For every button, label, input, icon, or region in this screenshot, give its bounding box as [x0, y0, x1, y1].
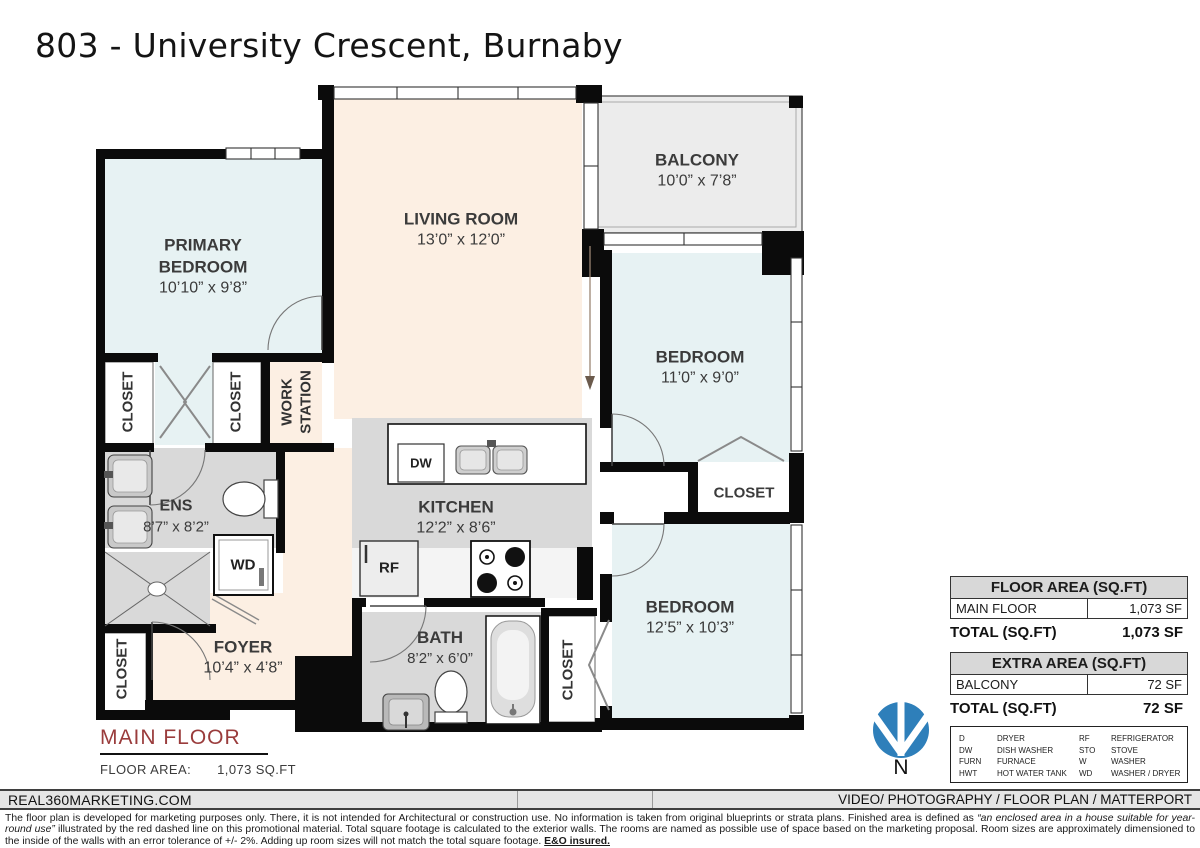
legend-abbr: W — [1079, 757, 1111, 766]
legend-label: DRYER — [997, 734, 1025, 743]
extra-area-row-label: BALCONY — [951, 675, 1087, 694]
main-floor-title: MAIN FLOOR — [100, 726, 300, 750]
table-row: BALCONY 72 SF — [950, 675, 1188, 695]
floor-plan-sheet: 803 - University Crescent, Burnaby — [0, 0, 1200, 848]
extra-area-total-row: TOTAL (SQ.FT) 72 SF — [950, 695, 1188, 721]
refrigerator-label: RF — [379, 560, 399, 577]
floor-area-total-label: TOTAL (SQ.FT) — [950, 624, 1057, 641]
legend-label: STOVE — [1111, 746, 1138, 755]
stove-icon — [471, 541, 530, 597]
legend-abbr: FURN — [959, 757, 997, 766]
kitchen-island — [388, 424, 586, 484]
legend-label: WASHER — [1111, 757, 1146, 766]
floor-area-total-value: 1,073 SF — [1122, 624, 1183, 641]
legend-label: REFRIGERATOR — [1111, 734, 1174, 743]
dishwasher-label: DW — [410, 456, 432, 471]
disclaimer-eo-insured: E&O insured. — [544, 836, 610, 847]
disclaimer-part-1: The floor plan is developed for marketin… — [5, 813, 977, 824]
bath-toilet-icon — [435, 671, 467, 723]
legend-abbr: DW — [959, 746, 997, 755]
room-label-closet-right: CLOSET — [714, 483, 775, 503]
room-label-bath: BATH 8’2” x 6’0” — [407, 627, 473, 667]
extra-area-total-value: 72 SF — [1143, 700, 1183, 717]
legend-abbr: D — [959, 734, 997, 743]
legend-abbr: RF — [1079, 734, 1111, 743]
table-row: MAIN FLOOR 1,073 SF — [950, 599, 1188, 619]
abbreviation-legend: DDRYER DWDISH WASHER FURNFURNACE HWTHOT … — [950, 726, 1188, 783]
room-label-living-room: LIVING ROOM 13’0” x 12’0” — [404, 208, 518, 249]
footer-divider — [517, 791, 518, 808]
disclaimer-text: The floor plan is developed for marketin… — [5, 813, 1195, 847]
footer-services: VIDEO/ PHOTOGRAPHY / FLOOR PLAN / MATTER… — [838, 792, 1200, 807]
floor-area-table-header: FLOOR AREA (SQ.FT) — [950, 576, 1188, 599]
room-label-kitchen: KITCHEN 12’2” x 8’6” — [416, 496, 495, 537]
legend-abbr: HWT — [959, 769, 997, 778]
extra-area-row-value: 72 SF — [1087, 675, 1187, 694]
extra-area-table-header: EXTRA AREA (SQ.FT) — [950, 652, 1188, 675]
legend-label: FURNACE — [997, 757, 1036, 766]
main-floor-caption: MAIN FLOOR FLOOR AREA: 1,073 SQ.FT — [100, 726, 300, 777]
room-label-bedroom-top: BEDROOM 11’0” x 9’0” — [656, 346, 745, 387]
floor-area-label: FLOOR AREA: — [100, 762, 191, 777]
room-label-work-station: WORK STATION — [278, 370, 316, 434]
legend-label: DISH WASHER — [997, 746, 1053, 755]
legend-abbr: STO — [1079, 746, 1111, 755]
floor-area-row-label: MAIN FLOOR — [951, 599, 1087, 618]
room-label-closet-1: CLOSET — [120, 372, 139, 433]
bathtub-icon — [486, 616, 540, 724]
room-label-closet-2: CLOSET — [228, 372, 247, 433]
floor-area-row-value: 1,073 SF — [1087, 599, 1187, 618]
washer-dryer-label: WD — [231, 557, 256, 574]
room-label-closet-bath: CLOSET — [560, 640, 579, 701]
room-label-primary-bedroom: PRIMARY BEDROOM 10’10” x 9’8” — [128, 234, 278, 297]
main-floor-underline — [100, 753, 268, 755]
floor-area-table: FLOOR AREA (SQ.FT) MAIN FLOOR 1,073 SF T… — [950, 576, 1188, 645]
footer-bar: REAL360MARKETING.COM VIDEO/ PHOTOGRAPHY … — [0, 789, 1200, 810]
footer-divider — [652, 791, 653, 808]
north-label: N — [893, 756, 908, 780]
floor-area-value: 1,073 SQ.FT — [217, 762, 296, 777]
room-label-ensuite: ENS 8’7” x 8’2” — [116, 497, 236, 536]
extra-area-total-label: TOTAL (SQ.FT) — [950, 700, 1057, 717]
room-label-closet-entry: CLOSET — [114, 639, 133, 700]
footer-website: REAL360MARKETING.COM — [0, 792, 192, 808]
room-label-balcony: BALCONY 10’0” x 7’8” — [655, 149, 739, 190]
extra-area-table: EXTRA AREA (SQ.FT) BALCONY 72 SF TOTAL (… — [950, 652, 1188, 721]
room-label-bedroom-bottom: BEDROOM 12’5” x 10’3” — [646, 596, 735, 637]
legend-label: HOT WATER TANK — [997, 769, 1067, 778]
floor-area-total-row: TOTAL (SQ.FT) 1,073 SF — [950, 619, 1188, 645]
bath-sink-icon — [383, 694, 429, 730]
legend-abbr: WD — [1079, 769, 1111, 778]
legend-label: WASHER / DRYER — [1111, 769, 1180, 778]
room-label-foyer: FOYER 10’4” x 4’8” — [203, 636, 282, 677]
